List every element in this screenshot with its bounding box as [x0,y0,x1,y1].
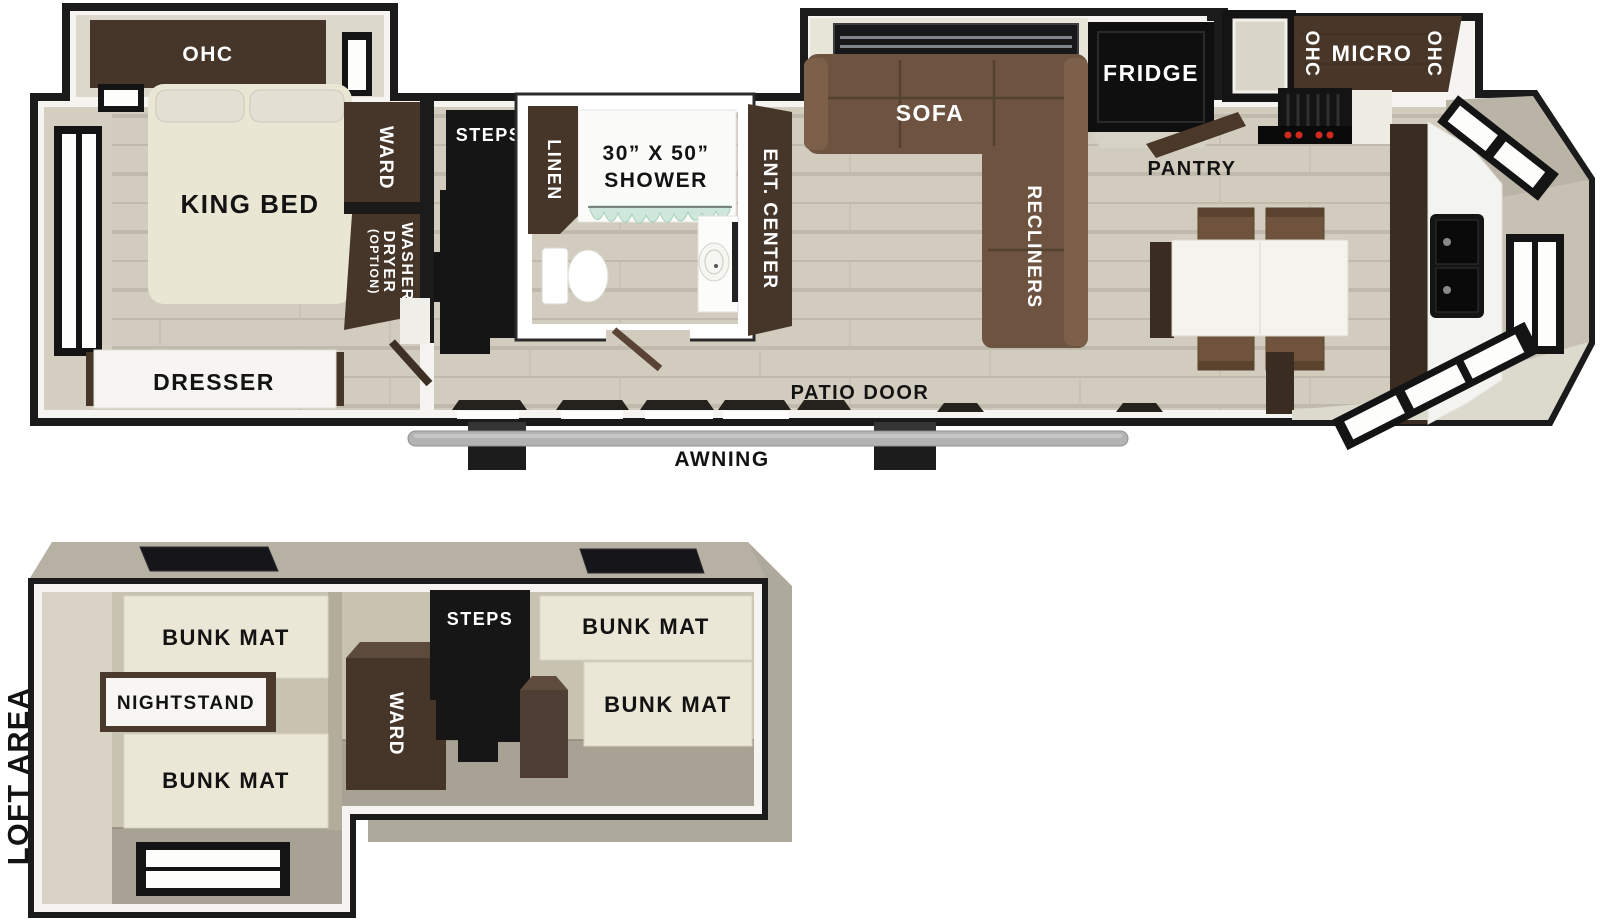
pantry-label: PANTRY [1148,158,1237,180]
floorplan-canvas: OHC KING BED WARD (OPTION) DRYER WASHER [0,0,1600,922]
bathroom: 30” X 50” SHOWER LINEN [516,94,754,371]
bath-vanity-edge [732,222,738,302]
cooktop [1258,126,1352,144]
king-bed-pillow-right [250,90,344,122]
cooktop-knob-1 [1285,132,1292,139]
recliners-label: RECLINERS [1023,185,1044,308]
shower-pan [578,110,736,222]
main-floorplan: OHC KING BED WARD (OPTION) DRYER WASHER [30,3,1595,471]
bottom-window-2 [561,411,623,419]
kitchen-sink-basin-top [1436,220,1478,264]
bath-sink [699,243,729,281]
kitchen-sink-basin-bottom [1436,268,1478,312]
patio-door-pane-2 [723,411,789,419]
loft-divider-wall [328,592,342,830]
awning-roller-highlight [414,434,1122,438]
dining-bench [1150,242,1174,338]
awning-bracket-left-top [468,422,526,430]
king-bed-label: KING BED [180,189,319,219]
cooktop-knob-4 [1327,132,1334,139]
loft-bunk-mat-bottom-right-label: BUNK MAT [604,692,732,717]
kitchen-ohc-right-label: OHC [1423,31,1444,78]
awning: AWNING [408,422,1128,471]
ent-center-label: ENT. CENTER [759,148,780,289]
loft-cabinet [520,690,568,778]
loft-ward-label: WARD [385,692,406,756]
loft-skylight-right [580,549,704,573]
kitchen-ohc-left-label: OHC [1301,31,1322,78]
fridge-label: FRIDGE [1103,60,1199,86]
kitchen-micro-label: MICRO [1332,41,1413,66]
loft-bunk-mat-top-right-label: BUNK MAT [582,614,710,639]
sink-drain-top [1443,238,1451,246]
dresser-label: DRESSER [153,369,275,395]
bedroom-seam-window-pane [104,90,138,106]
stairs-label: STEPS [456,125,523,145]
sofa-window-slat2 [840,45,1072,48]
awning-roller-bar [408,431,1128,446]
awning-bracket-right-top [874,422,936,430]
sofa-window-frame [834,24,1078,58]
dining-chair-top-right-back [1266,208,1324,217]
loft-bunk-mat-top-left-label: BUNK MAT [162,625,290,650]
washer-dryer-label-option: (OPTION) [367,229,381,295]
dining-side-cabinet [1266,352,1294,414]
rv-floorplan-page: OHC KING BED WARD (OPTION) DRYER WASHER [0,0,1600,922]
loft-bunk-mat-bottom-left-label: BUNK MAT [162,768,290,793]
sofa-window-slat1 [840,36,1072,39]
bedroom-window-pane-right [82,134,96,348]
loft-skylight-left [140,547,278,571]
loft-front-window-pane-top [146,850,280,867]
dining-chair-top-left-back [1198,208,1254,217]
loft-floorplan: BUNK MAT NIGHTSTAND BUNK MAT WARD STEPS … [3,542,792,918]
sofa-arm-right [1064,58,1088,346]
sink-drain-bottom [1443,286,1451,294]
patio-door-pane-1 [645,411,713,419]
toilet-tank [542,248,568,304]
shower-label-size: 30” X 50” [603,142,710,165]
ward-wd-divider-wall [344,202,424,214]
patio-door-label: PATIO DOOR [791,382,930,404]
washer-dryer-label-dryer: DRYER [380,231,397,294]
kitchen-window-pane [1234,20,1286,92]
kitchen-counter-white [1352,90,1392,144]
loft-nightstand-label: NIGHTSTAND [117,693,255,714]
loft-front-window-pane-bottom [146,871,280,888]
washer-dryer-label-washer: WASHER [398,222,415,301]
loft-left-wall-band [42,592,112,904]
awning-label: AWNING [674,448,769,471]
linen-label: LINEN [544,139,564,201]
sofa-label: SOFA [896,100,965,126]
cooktop-knob-3 [1316,132,1323,139]
bedroom-ohc-label: OHC [182,43,233,66]
bath-sink-drain [714,264,718,268]
bedroom-ward-label: WARD [375,126,396,190]
bedroom-slideout-window-pane [348,40,366,90]
shower-label: SHOWER [604,169,708,192]
toilet-bowl [568,250,608,302]
king-bed-pillow-left [156,90,244,122]
sofa-arm-left [804,58,828,150]
loft-area-title: LOFT AREA [3,687,35,865]
dining-chair-bottom-left-back [1198,361,1254,370]
cooktop-knob-2 [1296,132,1303,139]
bedroom-door-landing [400,298,430,344]
loft-stairs-label: STEPS [447,609,514,629]
ent-center: ENT. CENTER [748,104,792,336]
bottom-window-1 [457,411,519,419]
bedroom-window-pane-left [62,134,76,348]
